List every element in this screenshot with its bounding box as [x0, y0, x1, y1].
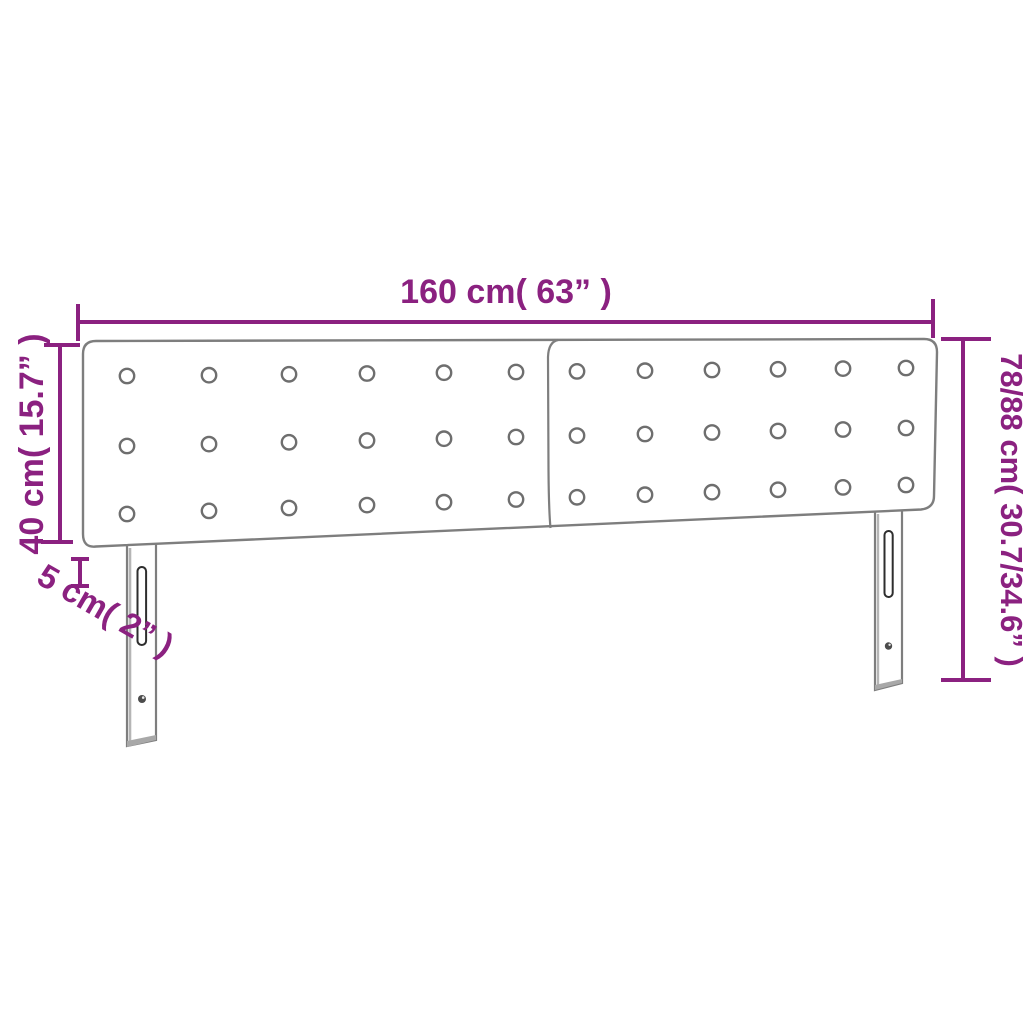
tufting-button [360, 366, 374, 380]
leg-right-slot [885, 531, 893, 597]
tufting-button [638, 488, 652, 502]
dimension-thickness: 5 cm( 2” ) [31, 556, 180, 663]
tufting-button [836, 361, 850, 375]
leg-right-screw [885, 642, 892, 649]
tufting-button [202, 368, 216, 382]
tufting-button [120, 439, 134, 453]
dimension-width: 160 cm( 63” ) [78, 273, 933, 341]
tufting-button [705, 485, 719, 499]
tufting-button [282, 435, 296, 449]
tufting-button [899, 421, 913, 435]
dimension-total-height-label: 78/88 cm( 30.7/34.6” ) [994, 353, 1024, 667]
tufting-button [509, 365, 523, 379]
tufting-button [638, 364, 652, 378]
tufting-button [120, 369, 134, 383]
tufting-button [705, 363, 719, 377]
tufting-button [899, 478, 913, 492]
dimension-width-label: 160 cm( 63” ) [400, 273, 612, 311]
tufting-button [202, 437, 216, 451]
tufting-button [899, 361, 913, 375]
tufting-button [282, 501, 296, 515]
dimension-thickness-label: 5 cm( 2” ) [31, 556, 180, 663]
tufting-button [120, 507, 134, 521]
leg-right-screw-highlight [888, 644, 890, 646]
tufting-button [771, 424, 785, 438]
tufting-button [570, 490, 584, 504]
dimension-panel-height: 40 cm( 15.7” ) [13, 333, 80, 554]
headboard-dimension-diagram: 160 cm( 63” ) 40 cm( 15.7” ) 5 cm( 2” ) … [0, 0, 1024, 1024]
tufting-button [509, 430, 523, 444]
tufting-button [570, 428, 584, 442]
tufting-button [771, 362, 785, 376]
tufting-button [836, 422, 850, 436]
tufting-button [570, 364, 584, 378]
tufting-button [360, 498, 374, 512]
tufting-button [771, 483, 785, 497]
tufting-button [282, 367, 296, 381]
diagram-stage: 160 cm( 63” ) 40 cm( 15.7” ) 5 cm( 2” ) … [0, 0, 1024, 1024]
headboard-leg-right [875, 506, 902, 690]
tufting-button [437, 432, 451, 446]
tufting-button [202, 504, 216, 518]
tufting-button [836, 480, 850, 494]
leg-left-screw-highlight [142, 696, 145, 699]
tufting-button [509, 492, 523, 506]
leg-left-screw [138, 695, 146, 703]
tufting-button [437, 495, 451, 509]
tufting-button [360, 433, 374, 447]
tufting-button [705, 425, 719, 439]
dimension-panel-height-label: 40 cm( 15.7” ) [13, 333, 51, 554]
tufting-button [638, 427, 652, 441]
tufting-button [437, 366, 451, 380]
dimension-total-height: 78/88 cm( 30.7/34.6” ) [941, 339, 1024, 680]
headboard [83, 339, 937, 747]
